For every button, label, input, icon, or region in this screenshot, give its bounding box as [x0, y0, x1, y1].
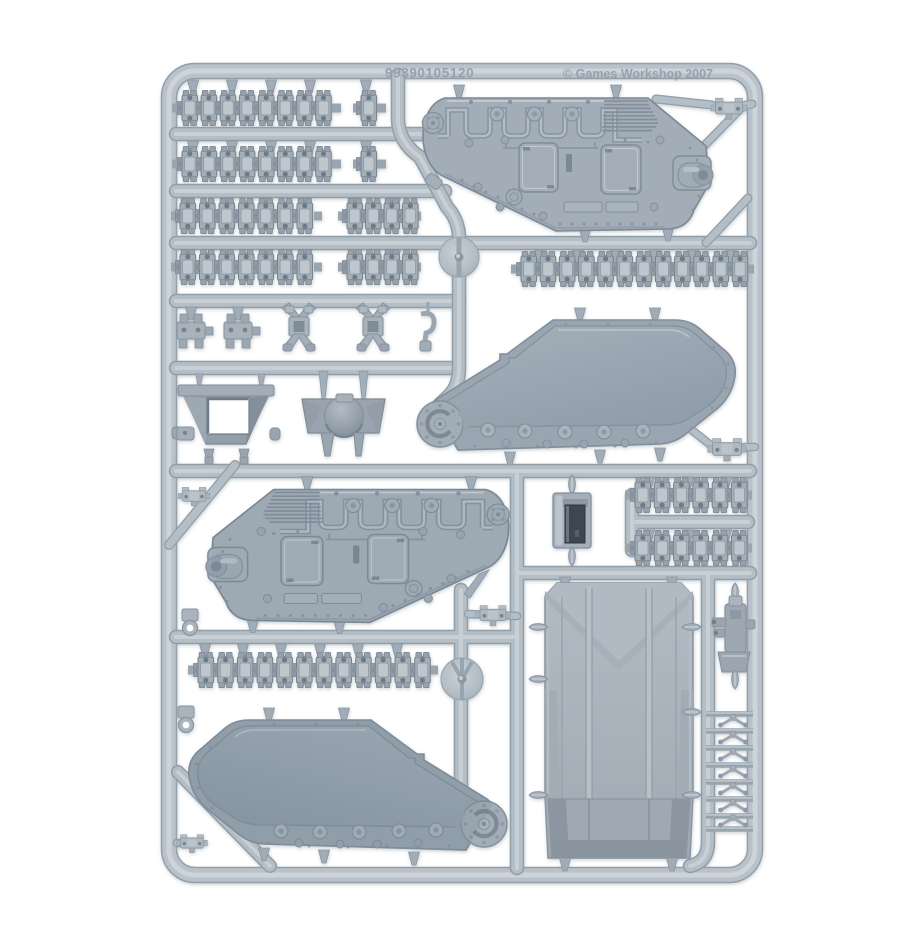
svg-text:© Games Workshop 2007: © Games Workshop 2007	[563, 67, 713, 81]
svg-text:99390105120: 99390105120	[385, 66, 474, 81]
